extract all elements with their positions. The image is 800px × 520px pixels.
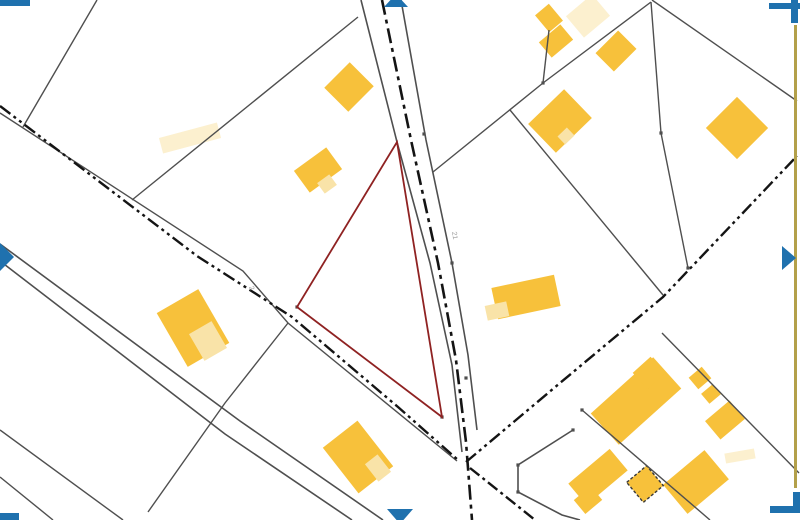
road-axis (0, 106, 458, 460)
building (706, 97, 768, 159)
road-edge (401, 0, 477, 430)
top-right-bracket-icon (791, 0, 798, 23)
building (701, 384, 721, 404)
top-edge-mark-icon (384, 0, 408, 7)
parcel-line (23, 0, 97, 127)
building (157, 289, 230, 367)
vertex-tick (516, 463, 519, 466)
bottom-left-bracket-icon (0, 513, 19, 520)
building (566, 0, 610, 38)
building (485, 301, 510, 320)
road-edge (518, 430, 580, 520)
planned-building (627, 466, 664, 503)
vertex-tick (422, 132, 425, 135)
map-labels-layer: 212 (247, 231, 458, 291)
road-edge (0, 261, 352, 520)
vertex-tick (686, 266, 689, 269)
building (323, 421, 393, 494)
road-axis (470, 468, 535, 520)
vertex-tick (450, 261, 453, 264)
road-edge (0, 244, 383, 520)
building (724, 448, 755, 463)
parcel-line (652, 0, 797, 101)
parcel-line (662, 333, 799, 473)
buildings-layer (157, 0, 768, 514)
parcel-line (510, 110, 663, 295)
parcel-line (433, 2, 651, 172)
parcel-lines-layer (0, 0, 799, 520)
vertex-tick (541, 81, 544, 84)
building (705, 401, 745, 440)
parcel-number-label: 21 (450, 231, 458, 240)
parcel-line (651, 2, 688, 268)
right-edge-mark-icon (782, 246, 796, 270)
top-left-bracket-icon (0, 0, 30, 6)
road-axes-layer (0, 0, 797, 520)
road-axis (382, 0, 472, 520)
vertex-tick (516, 490, 519, 493)
cadastral-map-viewport[interactable]: 212 (0, 0, 800, 520)
building (159, 123, 221, 154)
building (539, 24, 573, 57)
vertex-tick (659, 131, 662, 134)
cadastral-map: 212 (0, 0, 800, 520)
road-edges-layer (0, 0, 580, 520)
parcel-line (0, 113, 457, 461)
parcel-line (0, 430, 123, 520)
frame-markers-layer (0, 0, 800, 520)
building (595, 30, 636, 71)
building (689, 367, 712, 389)
bottom-right-bracket-icon (793, 492, 800, 513)
building (663, 450, 729, 514)
building (324, 62, 373, 111)
vertex-tick (464, 376, 467, 379)
vertex-tick (580, 408, 583, 411)
bottom-edge-mark-icon (387, 509, 413, 520)
vertex-tick (571, 428, 574, 431)
